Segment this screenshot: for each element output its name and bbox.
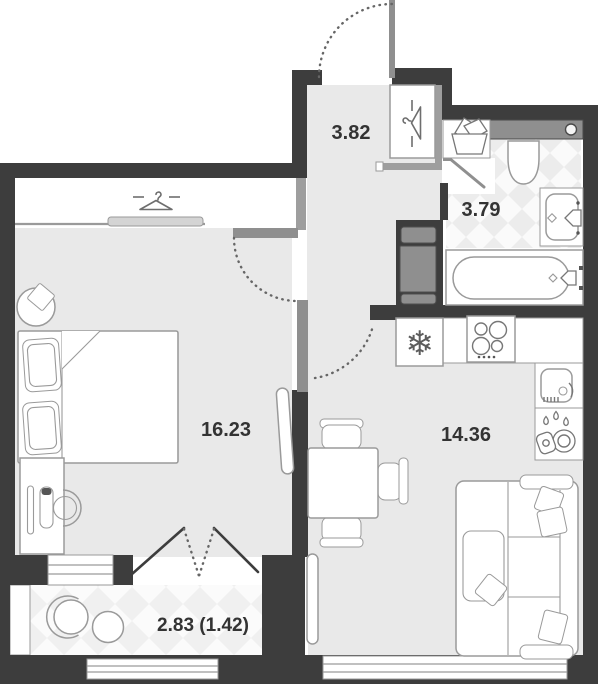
plate-icon [553,430,575,452]
chair-seat [322,425,361,449]
bathroom-shelf [488,120,583,139]
living-room-door-leaf [297,300,308,392]
niche-wall-cap [376,162,383,171]
bedroom-door-jamb-wall [296,178,306,230]
living-wall-panel [307,554,318,644]
wardrobe [15,192,205,226]
toilet-icon [508,141,539,184]
closet-niche-wall-h [382,163,442,170]
balcony-area-label: 2.83 (1.42) [157,615,249,636]
balcony-table [54,600,88,634]
washbasin [540,188,583,246]
balcony-stool [93,612,124,643]
bedroom-bottom-wall-left [10,555,48,585]
wardrobe-sliding-door [108,217,203,226]
living-room-area-label: 14.36 [441,424,491,446]
bed [18,331,178,463]
chair-seat [322,517,361,541]
balcony-side-glazing [10,585,30,655]
laundry-basket-icon [452,134,487,154]
drop-icon [544,417,549,425]
hall-closet [390,85,435,158]
stove-box [467,316,515,362]
shelf-knob [566,124,577,135]
hanger-icon [133,192,180,209]
bedroom-balcony-window [48,555,113,585]
dining-table [308,448,378,518]
desk-monitor-top [42,488,52,495]
hallway-left-wall [292,70,307,178]
laundry-basket [443,118,490,158]
balcony-window [87,659,218,679]
sofa [456,475,578,659]
kitchen-sink [535,363,583,408]
hallway-area-label: 3.82 [332,122,371,144]
bedroom-bottom-wall-right [113,555,133,585]
vent-shaft [396,220,443,307]
entrance-door-leaf [389,0,395,78]
vent-shaft-mid [400,246,436,292]
chair-back [320,538,363,547]
entrance-wall-left [292,70,322,85]
floor-plan: ❄ [0,0,600,684]
bedroom-top-wall [0,163,296,178]
chair-back [399,458,408,504]
left-wall [0,163,15,557]
bedroom-living-partition [292,390,308,557]
drop-icon [564,418,569,426]
closet-niche-wall-v [435,85,442,170]
sofa-pillow [537,507,568,538]
fridge: ❄ [396,318,443,366]
bedroom-area-label: 16.23 [201,419,251,441]
entrance-door-arc [319,4,392,77]
bathroom-top-wall [437,105,598,120]
toilet [508,141,539,184]
floor-plan-drawing: ❄ [0,0,600,684]
vent-shaft-bottom [401,294,436,304]
snowflake-icon: ❄ [405,324,434,364]
bed-pillow-bottom [22,401,62,455]
vent-shaft-top [401,227,436,243]
balcony-right-wall [262,555,305,657]
dish-drying [535,408,583,460]
entrance-door [319,0,395,78]
desk-top [20,458,64,554]
bed-pillow-top [22,338,62,392]
hallway-furniture [390,85,435,158]
sofa-armrest [520,645,573,659]
bathroom-area-label: 3.79 [462,199,501,221]
right-wall [583,105,598,684]
bathtub [446,250,583,305]
bedroom-door-leaf [233,228,298,238]
stove [467,316,515,362]
chair-seat [378,463,401,500]
bathroom-left-wall-strip [440,183,448,220]
drop-icon [554,412,559,420]
entrance-wall-right [392,68,452,85]
